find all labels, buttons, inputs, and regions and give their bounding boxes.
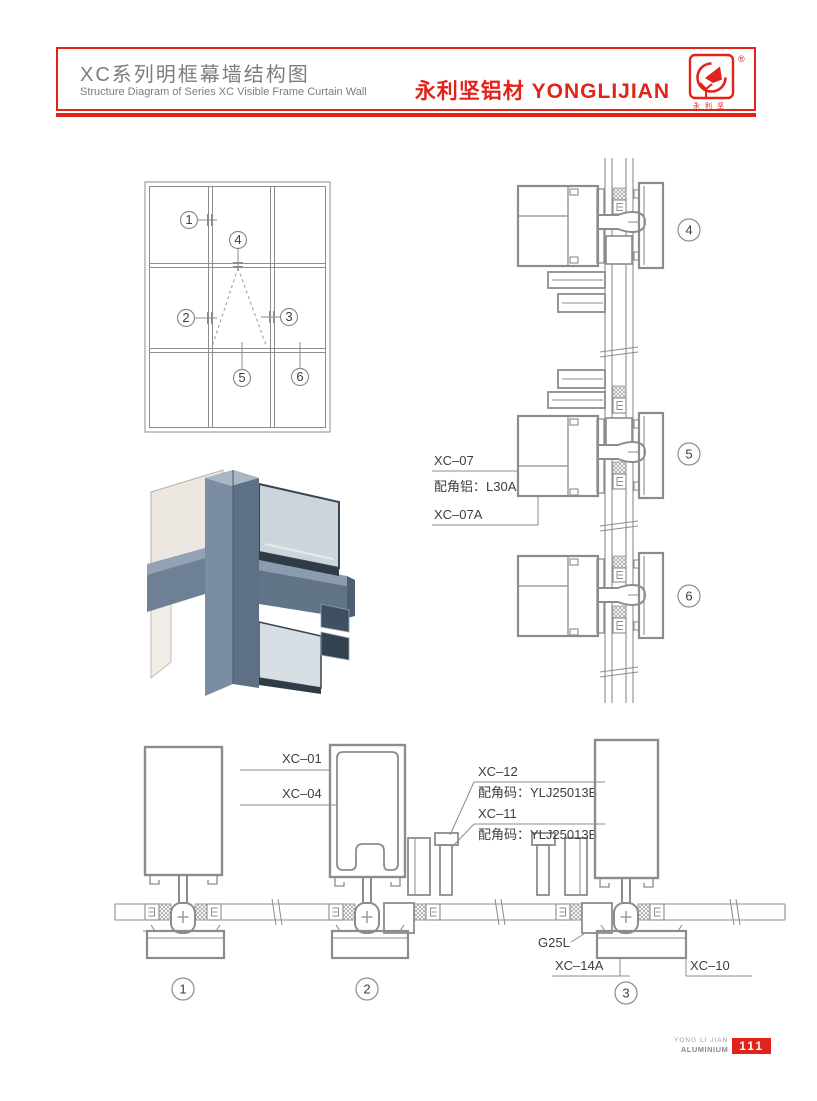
horizontal-section-details: 1 2 XC–01 XC–04 <box>100 727 790 1017</box>
label-xc14a: XC–14A <box>555 958 604 973</box>
detail-2-labels: XC–01 XC–04 <box>240 751 337 805</box>
section-detail-4: 4 <box>518 183 700 312</box>
label-xc07a: XC–07A <box>434 507 483 522</box>
label-xc01: XC–01 <box>282 751 322 766</box>
label-xc04: XC–04 <box>282 786 322 801</box>
callout-3: 3 <box>285 309 292 324</box>
label-corner-aluminium: 配角铝：L30A <box>434 479 517 494</box>
callout-4: 4 <box>685 223 692 238</box>
footer: YONG LI JIAN ALUMINIUM 111 <box>674 1037 771 1055</box>
logo-caption: 永利坚 <box>693 101 729 110</box>
mullion-vertical <box>205 470 259 696</box>
section-detail-1: 1 <box>143 747 224 1000</box>
glazing-gaskets <box>145 904 664 920</box>
glass-panel-lower <box>259 622 321 694</box>
section-detail-2: 2 XC–01 XC–04 <box>240 745 414 1000</box>
detail-5-labels: XC–07 配角铝：L30A XC–07A <box>432 453 538 525</box>
footer-brand-line1: YONG LI JIAN <box>674 1037 728 1045</box>
brand-wordmark: 永利坚铝材 YONGLIJIAN <box>370 75 670 105</box>
elevation-diagram: 1 2 3 4 5 6 <box>133 172 363 442</box>
side-profile-stack <box>321 604 349 660</box>
callout-5: 5 <box>238 370 245 385</box>
callout-1: 1 <box>185 212 192 227</box>
section-detail-3: 3 G25L XC–14A XC–10 <box>538 740 752 1004</box>
vent-labels: XC–12 配角码：YLJ25013B XC–11 配角码：YLJ25013B <box>450 764 605 847</box>
elevation-callouts: 1 2 3 4 5 6 <box>178 212 309 387</box>
page-subtitle: Structure Diagram of Series XC Visible F… <box>80 86 367 98</box>
label-xc07: XC–07 <box>434 453 474 468</box>
page-title: XC系列明框幕墙结构图 <box>80 58 310 87</box>
registered-mark: ® <box>738 54 745 64</box>
brand-logo-icon: ® 永利坚 <box>686 52 750 110</box>
header-red-rule <box>56 113 756 117</box>
label-corner-code-2: 配角码：YLJ25013B <box>478 827 597 842</box>
label-xc10: XC–10 <box>690 958 730 973</box>
footer-brand-line2: ALUMINIUM <box>674 1045 728 1054</box>
vertical-section-details: 4 5 XC–07 配角铝：L30A <box>430 158 720 703</box>
label-xc12: XC–12 <box>478 764 518 779</box>
section-detail-5: 5 XC–07 配角铝：L30A XC–07A <box>432 370 700 525</box>
callout-1: 1 <box>179 982 186 997</box>
callout-4: 4 <box>234 232 241 247</box>
section-detail-6: 6 <box>518 553 700 638</box>
callout-2: 2 <box>363 982 370 997</box>
callout-5: 5 <box>685 447 692 462</box>
callout-6: 6 <box>296 369 303 384</box>
page-number-badge: 111 <box>732 1038 771 1054</box>
profile-3d-render <box>133 456 368 701</box>
callout-leaders <box>195 214 306 370</box>
catalog-page: XC系列明框幕墙结构图 Structure Diagram of Series … <box>0 0 817 1101</box>
callout-6: 6 <box>685 589 692 604</box>
callout-3: 3 <box>622 986 629 1001</box>
label-g25l: G25L <box>538 935 570 950</box>
label-xc11: XC–11 <box>478 806 517 821</box>
detail-3-labels: G25L XC–14A XC–10 <box>538 934 752 976</box>
callout-2: 2 <box>182 310 189 325</box>
curtain-wall-grid <box>145 182 330 432</box>
vent-opening-dashed-lines <box>212 268 266 347</box>
glass-panel-upper-right <box>259 484 339 576</box>
vent-sash-profiles: XC–12 配角码：YLJ25013B XC–11 配角码：YLJ25013B <box>408 764 605 895</box>
footer-brand: YONG LI JIAN ALUMINIUM <box>674 1037 728 1055</box>
label-corner-code-1: 配角码：YLJ25013B <box>478 785 597 800</box>
